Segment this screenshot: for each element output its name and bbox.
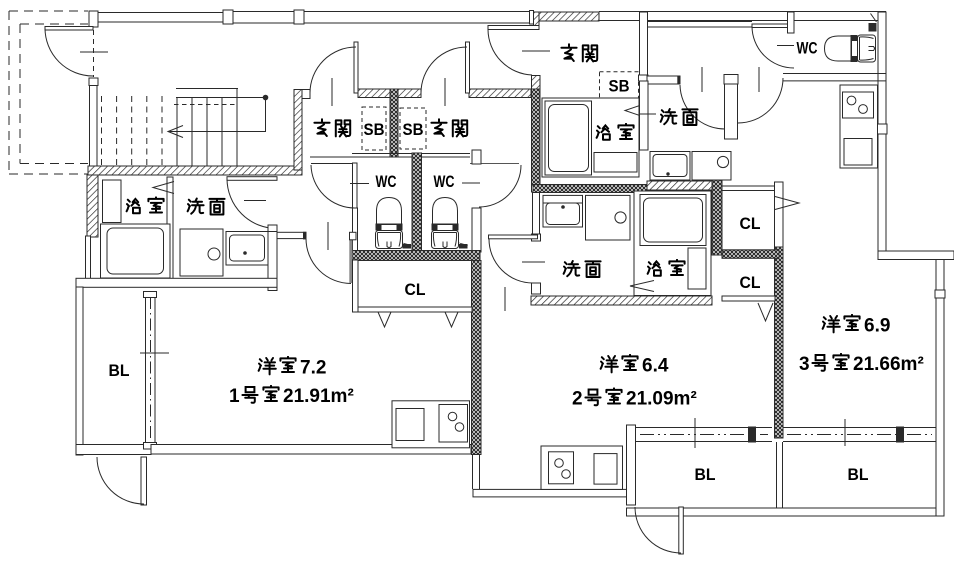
svg-text:CL: CL: [740, 214, 761, 233]
svg-text:WC: WC: [797, 39, 818, 58]
svg-text:1: 1: [229, 386, 240, 407]
svg-text:7.2: 7.2: [300, 358, 326, 379]
svg-text:BL: BL: [848, 465, 869, 484]
svg-text:WC: WC: [434, 172, 455, 191]
svg-text:21.09m²: 21.09m²: [626, 389, 697, 410]
svg-text:SB: SB: [609, 77, 630, 96]
svg-text:CL: CL: [740, 273, 761, 292]
svg-text:2: 2: [572, 389, 583, 410]
svg-text:CL: CL: [405, 280, 426, 299]
svg-text:6.9: 6.9: [864, 316, 890, 337]
svg-text:WC: WC: [376, 172, 397, 191]
svg-text:SB: SB: [403, 120, 424, 139]
svg-text:BL: BL: [695, 465, 716, 484]
svg-text:6.4: 6.4: [642, 356, 669, 377]
svg-text:21.66m²: 21.66m²: [853, 354, 924, 375]
svg-text:BL: BL: [109, 361, 130, 380]
svg-text:3: 3: [799, 354, 810, 375]
svg-text:21.91m²: 21.91m²: [283, 386, 354, 407]
svg-text:SB: SB: [364, 120, 385, 139]
